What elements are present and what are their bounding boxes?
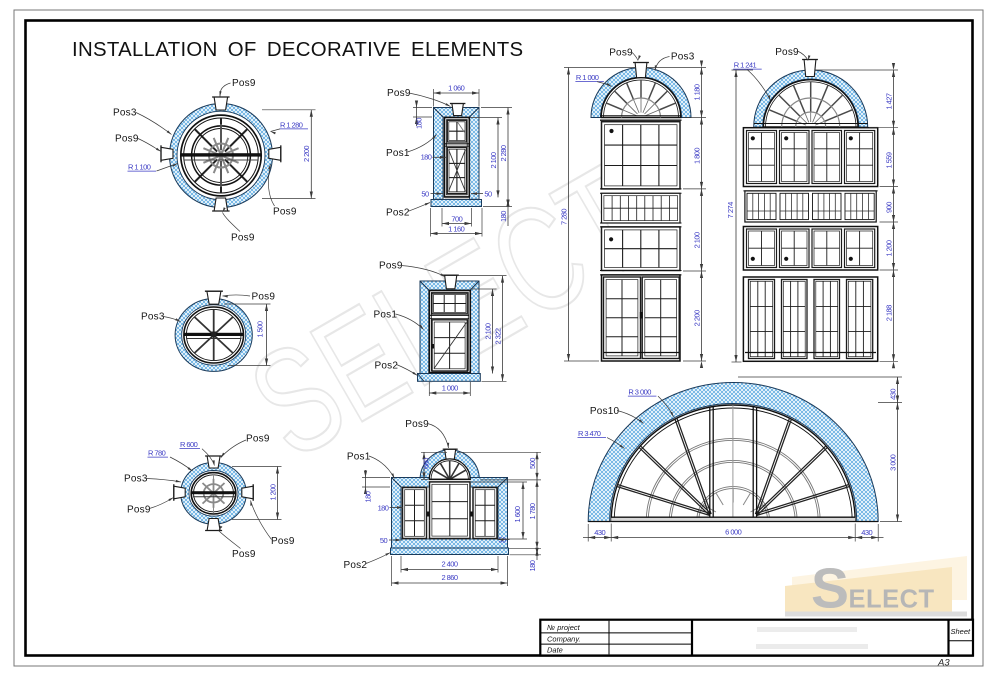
svg-text:2 100: 2 100 [483, 323, 492, 339]
svg-text:Pos9: Pos9 [775, 47, 799, 58]
svg-text:7 280: 7 280 [559, 209, 568, 225]
svg-text:R 1 100: R 1 100 [128, 163, 151, 172]
svg-text:Pos9: Pos9 [252, 292, 276, 303]
svg-text:500: 500 [528, 458, 537, 469]
svg-text:6 000: 6 000 [725, 528, 741, 537]
svg-text:R 3 000: R 3 000 [628, 388, 651, 397]
svg-text:Pos9: Pos9 [609, 48, 633, 59]
svg-text:Pos9: Pos9 [115, 134, 139, 145]
svg-text:Date: Date [547, 646, 563, 655]
svg-text:180: 180 [499, 211, 508, 222]
svg-text:Pos2: Pos2 [386, 208, 410, 219]
svg-text:700: 700 [451, 215, 462, 224]
svg-text:3 000: 3 000 [888, 454, 897, 470]
svg-text:2 200: 2 200 [302, 146, 311, 162]
svg-text:180: 180 [528, 560, 537, 571]
svg-text:A3: A3 [937, 658, 950, 669]
svg-text:Pos9: Pos9 [387, 88, 411, 99]
svg-text:R 1 280: R 1 280 [280, 120, 303, 129]
svg-text:Pos9: Pos9 [405, 419, 429, 430]
svg-text:180: 180 [421, 153, 432, 162]
svg-text:2 280: 2 280 [499, 145, 508, 161]
svg-text:ELECT: ELECT [849, 586, 935, 614]
svg-text:1 200: 1 200 [268, 484, 277, 500]
svg-text:Pos3: Pos3 [671, 52, 695, 63]
svg-text:1 800: 1 800 [692, 148, 701, 164]
svg-text:1 060: 1 060 [448, 84, 464, 93]
svg-text:Pos2: Pos2 [375, 361, 399, 372]
svg-text:R 600: R 600 [180, 440, 198, 449]
svg-text:Pos10: Pos10 [590, 406, 620, 417]
svg-text:50: 50 [421, 190, 429, 199]
svg-text:1 427: 1 427 [884, 93, 893, 109]
svg-text:Pos9: Pos9 [246, 434, 270, 445]
svg-text:180: 180 [414, 118, 423, 129]
svg-text:1 559: 1 559 [884, 152, 893, 168]
svg-text:INSTALLATION OF DECORATIVE ELE: INSTALLATION OF DECORATIVE ELEMENTS [72, 39, 523, 61]
svg-text:430: 430 [861, 528, 872, 537]
svg-text:7 274: 7 274 [726, 202, 735, 218]
svg-text:2 100: 2 100 [692, 232, 701, 248]
svg-text:2 322: 2 322 [493, 328, 502, 344]
svg-text:50: 50 [380, 536, 388, 545]
svg-text:Pos3: Pos3 [113, 108, 137, 119]
svg-text:1 000: 1 000 [442, 384, 458, 393]
svg-text:50: 50 [484, 190, 492, 199]
svg-text:Sheet: Sheet [951, 627, 972, 636]
svg-text:R 780: R 780 [148, 449, 166, 458]
svg-text:1 160: 1 160 [448, 224, 464, 233]
svg-text:Pos3: Pos3 [141, 312, 165, 323]
svg-text:180: 180 [378, 504, 389, 513]
svg-text:430: 430 [594, 528, 605, 537]
svg-text:Pos1: Pos1 [374, 310, 398, 321]
svg-text:680: 680 [422, 458, 431, 469]
svg-text:2 400: 2 400 [441, 560, 457, 569]
svg-text:1 600: 1 600 [513, 506, 522, 522]
svg-text:2 100: 2 100 [489, 152, 498, 168]
svg-text:2 188: 2 188 [884, 305, 893, 321]
svg-text:180: 180 [364, 491, 373, 502]
svg-text:Pos3: Pos3 [124, 474, 148, 485]
svg-text:Pos1: Pos1 [386, 148, 410, 159]
svg-text:№ project: № project [547, 623, 581, 632]
svg-text:1 780: 1 780 [528, 503, 537, 519]
svg-text:R 3 470: R 3 470 [578, 429, 601, 438]
svg-text:R 1 000: R 1 000 [576, 73, 599, 82]
svg-text:Pos9: Pos9 [379, 261, 403, 272]
svg-text:S: S [811, 557, 849, 621]
svg-text:Pos1: Pos1 [347, 452, 371, 463]
svg-text:Pos2: Pos2 [344, 560, 368, 571]
svg-text:430: 430 [888, 389, 897, 400]
svg-text:1 180: 1 180 [692, 84, 701, 100]
svg-text:Pos9: Pos9 [232, 549, 256, 560]
svg-text:900: 900 [884, 202, 893, 213]
svg-text:1 500: 1 500 [256, 321, 265, 337]
svg-text:Pos9: Pos9 [273, 207, 297, 218]
svg-text:Pos9: Pos9 [232, 78, 256, 89]
svg-text:Pos9: Pos9 [127, 505, 151, 516]
svg-text:Pos9: Pos9 [231, 233, 255, 244]
svg-text:R 1 241: R 1 241 [734, 61, 757, 70]
svg-text:1 200: 1 200 [884, 240, 893, 256]
svg-text:2 200: 2 200 [692, 310, 701, 326]
svg-text:Company.: Company. [547, 635, 581, 644]
svg-text:2 860: 2 860 [441, 573, 457, 582]
svg-text:Pos9: Pos9 [271, 536, 295, 547]
